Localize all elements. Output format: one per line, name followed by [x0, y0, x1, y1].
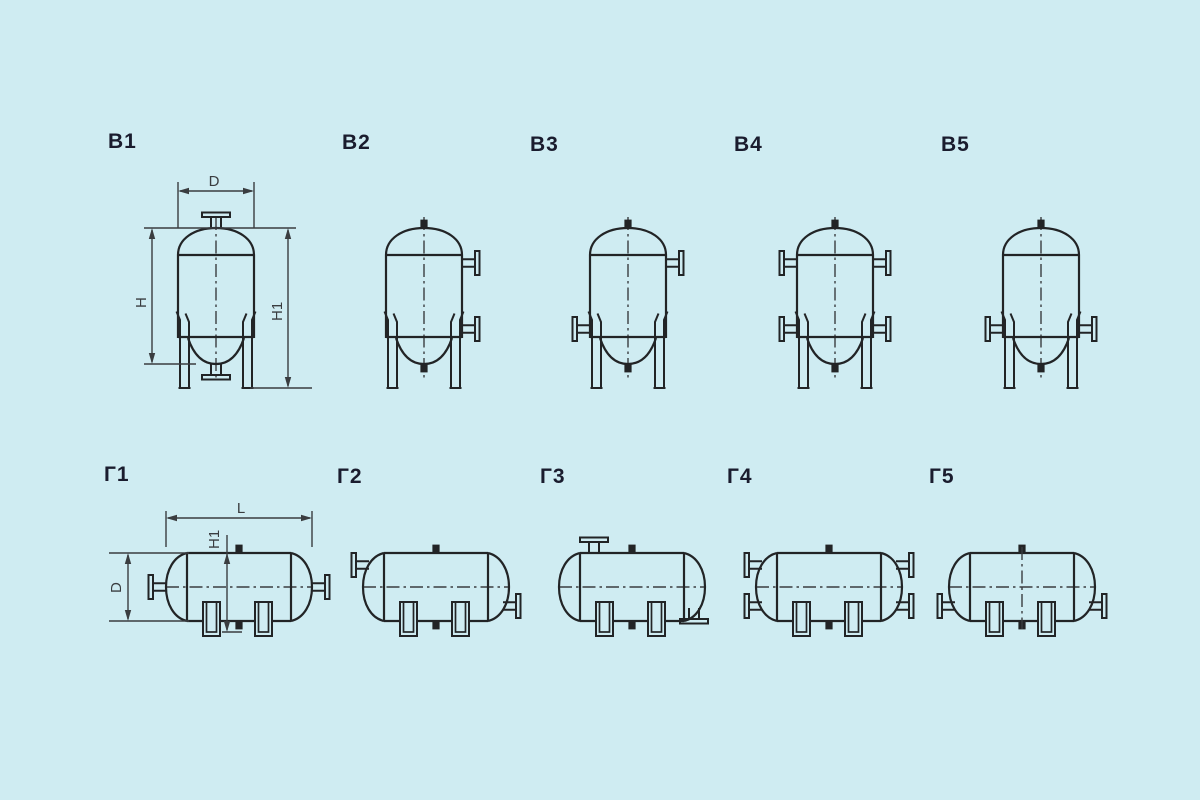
right-upper-nozzle [462, 251, 480, 275]
figure-v2: В2 [340, 126, 510, 401]
figure-v5-drawing [961, 215, 1121, 395]
vertical-tank-body [1002, 217, 1081, 388]
horizontal-tank-body [559, 545, 705, 636]
top-stub-nozzle [420, 220, 427, 229]
figure-g4-drawing [734, 535, 924, 645]
dim-label-H1: H1 [269, 302, 286, 321]
figure-g1-label: Г1 [104, 463, 130, 487]
left-center-nozzle [149, 575, 167, 599]
figure-g3-label: Г3 [540, 465, 566, 489]
figure-v1: В1 D H [100, 125, 330, 415]
figure-g5-drawing [927, 535, 1117, 645]
left-upper-nozzle [745, 553, 763, 577]
figure-v1-label: В1 [108, 130, 137, 154]
right-center-nozzle [312, 575, 330, 599]
right-lower-nozzle [462, 317, 480, 341]
bottom-stub-nozzle [831, 364, 838, 373]
vertical-tank-body [385, 217, 464, 388]
figure-v4: В4 [732, 128, 902, 403]
figure-v5-label: В5 [941, 133, 970, 157]
right-lower-nozzle [873, 317, 891, 341]
figure-g5-label: Г5 [929, 465, 955, 489]
figure-v4-label: В4 [734, 133, 763, 157]
right-upper-nozzle [896, 553, 914, 577]
right-upper-nozzle [666, 251, 684, 275]
horizontal-tank-body [756, 545, 902, 636]
dim-label-L: L [237, 500, 245, 517]
top-stub-nozzle [624, 220, 631, 229]
figure-v4-drawing [755, 215, 915, 395]
dimension-lines: D H H1 [133, 173, 312, 388]
bottom-stub-nozzle [1037, 364, 1044, 373]
figure-g3-drawing [537, 535, 727, 645]
vertical-tank-body [589, 217, 668, 388]
dim-label-D: D [209, 173, 220, 190]
dim-label-D: D [108, 582, 125, 593]
horizontal-tank-body [363, 545, 509, 636]
vertical-tank-body [796, 217, 875, 388]
figure-g1: Г1 L H1 [101, 458, 336, 663]
figure-g4-label: Г4 [727, 465, 753, 489]
top-stub-nozzle [1037, 220, 1044, 229]
left-lower-nozzle [780, 317, 798, 341]
top-stub-nozzle [831, 220, 838, 229]
left-upper-nozzle [780, 251, 798, 275]
figure-g2: Г2 [335, 460, 530, 650]
figure-v1-drawing: D H H1 [100, 161, 330, 411]
left-lower-nozzle [986, 317, 1004, 341]
left-upper-nozzle [352, 553, 370, 577]
left-lower-nozzle [573, 317, 591, 341]
figure-g3: Г3 [537, 460, 732, 650]
figure-v3-label: В3 [530, 133, 559, 157]
figure-g1-drawing: L H1 D [101, 489, 331, 659]
vertical-tank-body [177, 217, 256, 388]
figure-v2-label: В2 [342, 131, 371, 155]
right-lower-nozzle [1079, 317, 1097, 341]
figure-v3: В3 [528, 128, 698, 403]
figure-v2-drawing [344, 215, 504, 395]
drawing-sheet: В1 D H [0, 0, 1200, 800]
figure-v3-drawing [548, 215, 708, 395]
top-left-flanged-nozzle [580, 538, 608, 554]
figure-g2-drawing [341, 535, 531, 645]
right-upper-nozzle [873, 251, 891, 275]
dim-label-H1: H1 [206, 530, 223, 549]
figure-g4: Г4 [725, 460, 925, 650]
figure-v5: В5 [939, 128, 1109, 403]
dim-label-H: H [133, 297, 150, 308]
horizontal-tank-body [166, 545, 312, 636]
bottom-stub-nozzle [420, 364, 427, 373]
figure-g2-label: Г2 [337, 465, 363, 489]
bottom-stub-nozzle [624, 364, 631, 373]
figure-g5: Г5 [927, 460, 1122, 650]
